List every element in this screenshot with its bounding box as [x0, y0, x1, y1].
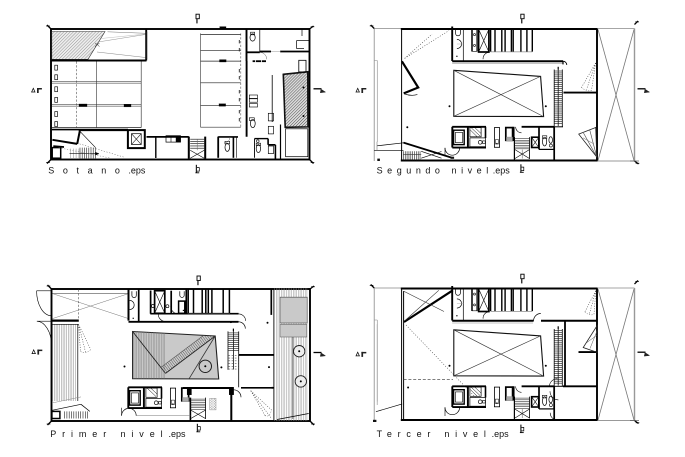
svg-text:Primer nivel.eps: Primer nivel.eps — [50, 429, 186, 439]
svg-text:Segundo nivel.eps: Segundo nivel.eps — [377, 165, 511, 175]
svg-text:Sotano.eps: Sotano.eps — [48, 166, 146, 176]
svg-text:Tercer nivel.eps: Tercer nivel.eps — [377, 429, 510, 439]
